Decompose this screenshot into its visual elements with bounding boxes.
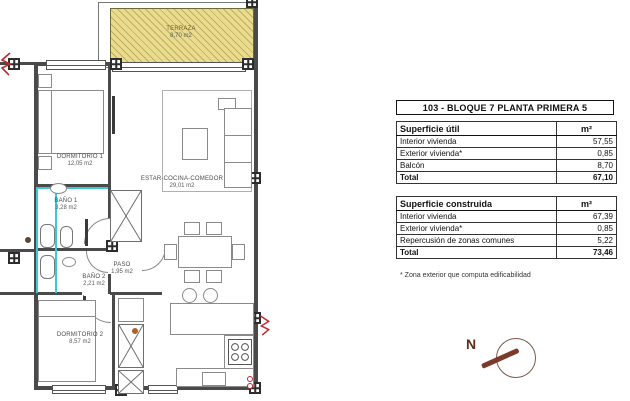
wardrobe-icon [110, 190, 142, 242]
dining-chair [206, 222, 222, 235]
utility-dot [132, 328, 138, 334]
room-label-terraza: TERRAZA 8,70 m2 [150, 26, 212, 40]
room-label-estar: ESTAR-COCINA-COMEDOR 29,01 m2 [136, 176, 228, 190]
window [148, 385, 178, 394]
dining-table [178, 236, 232, 268]
table-row: Repercusión de zonas comunes 5,22 [397, 235, 617, 247]
table-header: Superficie construida [397, 197, 557, 211]
total-label: Total [397, 172, 557, 184]
room-name: DORMITORIO 2 [48, 332, 112, 339]
room-name: TERRAZA [150, 26, 212, 33]
electrical-symbol-icon [258, 314, 272, 336]
room-area: 29,01 m2 [136, 183, 228, 190]
utility-dot [247, 383, 253, 389]
room-area: 8,70 m2 [150, 33, 212, 40]
stove-hob-icon [228, 339, 252, 365]
room-area: 3,28 m2 [42, 205, 90, 212]
electrical-symbol-icon [0, 52, 12, 76]
tv [112, 96, 115, 134]
table-row: Exterior vivienda* 0,85 [397, 148, 617, 160]
room-area: 12,05 m2 [44, 161, 116, 168]
room-label-paso: PASO 1,95 m2 [100, 262, 144, 276]
nightstand [38, 74, 52, 88]
footnote: * Zona exterior que computa edificabilid… [400, 272, 531, 279]
table-header-row: Superficie útil m² [397, 122, 617, 136]
utility-dot [247, 376, 253, 382]
bidet [60, 226, 73, 248]
unit-header: m² [557, 122, 617, 136]
column-pillar-icon [246, 0, 258, 8]
plumbing-line [36, 187, 108, 189]
row-value: 8,70 [557, 160, 617, 172]
row-label: Interior vivienda [397, 136, 557, 148]
kitchen-sink [202, 372, 226, 386]
unit-header: m² [557, 197, 617, 211]
room-name: DORMITORIO 1 [44, 154, 116, 161]
dining-chair [164, 244, 177, 260]
table-header-row: Superficie construida m² [397, 197, 617, 211]
window [52, 385, 106, 394]
row-label: Exterior vivienda* [397, 148, 557, 160]
washbasin [50, 183, 67, 194]
wardrobe-icon [118, 370, 144, 394]
column-pillar-icon [242, 58, 254, 70]
table-total-row: Total 73,46 [397, 247, 617, 259]
dining-chair [206, 270, 222, 283]
column-pillar-icon [110, 58, 122, 70]
dining-chair [184, 270, 200, 283]
table-row: Interior vivienda 67,39 [397, 211, 617, 223]
room-label-bano1: BAÑO 1 3,28 m2 [42, 198, 90, 212]
room-name: BAÑO 1 [42, 198, 90, 205]
wall [112, 292, 115, 388]
door-leaf [85, 219, 88, 246]
row-label: Repercusión de zonas comunes [397, 235, 557, 247]
plumbing-line [36, 187, 38, 293]
column-pillar-icon [8, 252, 20, 264]
dining-chair [232, 244, 245, 260]
superficie-construida-table: Superficie construida m² Interior vivien… [396, 196, 617, 259]
door-arc [142, 247, 166, 271]
room-label-dormitorio2: DORMITORIO 2 8,57 m2 [48, 332, 112, 346]
room-label-bano2: BAÑO 2 2,21 m2 [70, 274, 118, 288]
room-area: 1,95 m2 [100, 269, 144, 276]
row-label: Interior vivienda [397, 211, 557, 223]
room-label-dormitorio1: DORMITORIO 1 12,05 m2 [44, 154, 116, 168]
dining-chair [184, 222, 200, 235]
stool [182, 288, 197, 303]
table-row: Interior vivienda 57,55 [397, 136, 617, 148]
row-value: 5,22 [557, 235, 617, 247]
closet-shelf [118, 298, 144, 322]
toilet [40, 255, 55, 279]
washbasin [62, 257, 76, 267]
window [112, 62, 246, 72]
total-value: 67,10 [557, 172, 617, 184]
row-value: 0,85 [557, 223, 617, 235]
table-header: Superficie útil [397, 122, 557, 136]
total-value: 73,46 [557, 247, 617, 259]
superficie-util-table: Superficie útil m² Interior vivienda 57,… [396, 121, 617, 184]
wardrobe-icon [118, 324, 144, 368]
room-name: PASO [100, 262, 144, 269]
row-value: 67,39 [557, 211, 617, 223]
room-area: 2,21 m2 [70, 281, 118, 288]
sofa [224, 108, 252, 188]
row-label: Exterior vivienda* [397, 223, 557, 235]
table-row: Exterior vivienda* 0,85 [397, 223, 617, 235]
window [46, 60, 106, 70]
table-total-row: Total 67,10 [397, 172, 617, 184]
floorplan-sheet: TERRAZA 8,70 m2 DORMITORIO [0, 0, 630, 401]
utility-dot [25, 237, 31, 243]
total-label: Total [397, 247, 557, 259]
stool [203, 288, 218, 303]
plan-title: 103 - BLOQUE 7 PLANTA PRIMERA 5 [396, 100, 614, 115]
wall [0, 292, 82, 295]
room-name: ESTAR-COCINA-COMEDOR [136, 176, 228, 183]
row-value: 57,55 [557, 136, 617, 148]
row-value: 0,85 [557, 148, 617, 160]
coffee-table [182, 128, 208, 160]
row-label: Balcón [397, 160, 557, 172]
north-label: N [466, 336, 476, 352]
toilet [40, 224, 55, 248]
table-row: Balcón 8,70 [397, 160, 617, 172]
bed [38, 90, 104, 154]
wall [110, 292, 162, 295]
room-area: 8,57 m2 [48, 339, 112, 346]
kitchen-counter [170, 303, 254, 335]
